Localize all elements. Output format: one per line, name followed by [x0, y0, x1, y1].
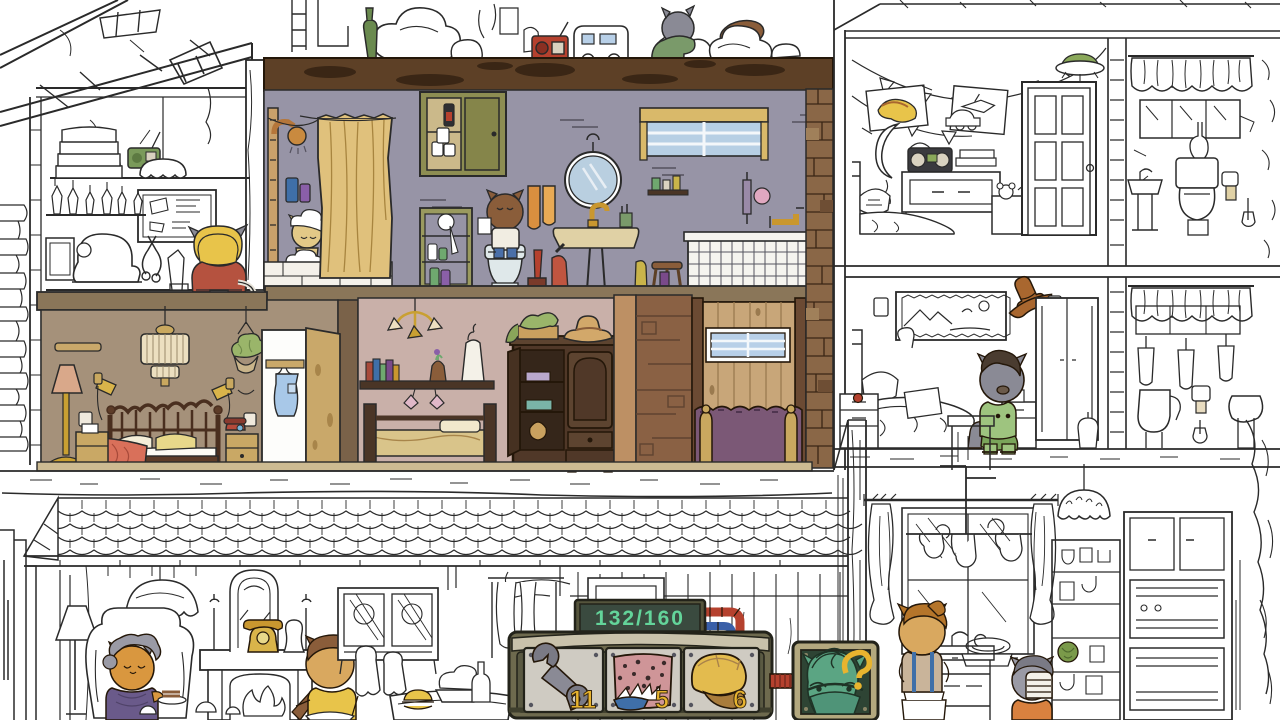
svg-text:5: 5 [655, 686, 669, 714]
svg-text:132/160: 132/160 [595, 607, 685, 630]
svg-text:6: 6 [733, 686, 747, 714]
svg-text:11: 11 [570, 686, 597, 714]
